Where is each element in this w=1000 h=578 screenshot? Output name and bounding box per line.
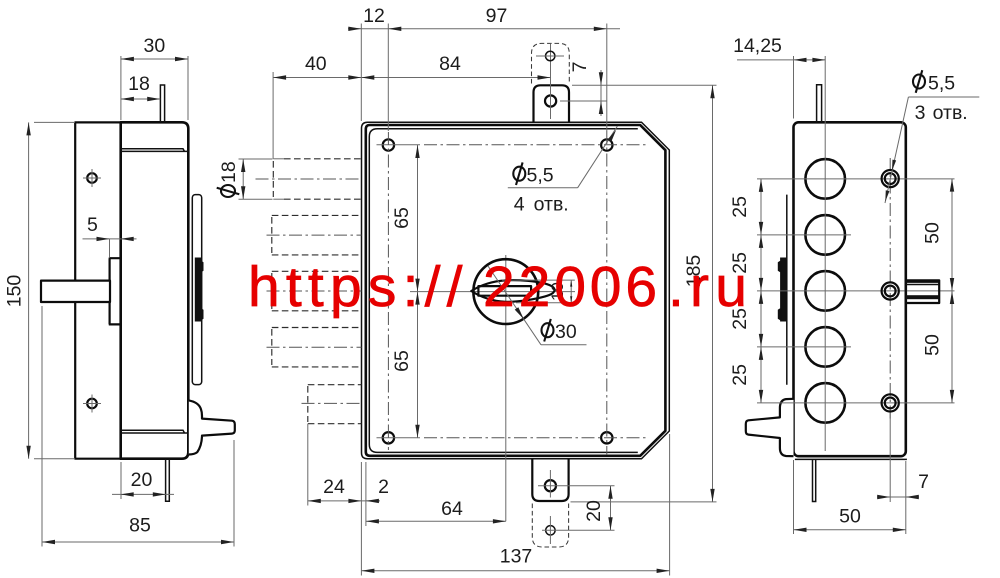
svg-text:25: 25 <box>729 364 751 386</box>
svg-text:20: 20 <box>583 500 605 522</box>
svg-text:65: 65 <box>391 207 413 229</box>
svg-text:65: 65 <box>391 350 413 372</box>
svg-text:30: 30 <box>555 321 577 343</box>
svg-text:3: 3 <box>915 102 926 124</box>
svg-text:18: 18 <box>128 73 150 95</box>
svg-text:2: 2 <box>378 476 389 498</box>
svg-text:50: 50 <box>922 334 944 356</box>
svg-text:7: 7 <box>569 62 591 73</box>
svg-text:50: 50 <box>922 222 944 244</box>
svg-text:84: 84 <box>439 53 461 75</box>
svg-text:137: 137 <box>500 546 533 568</box>
svg-text:97: 97 <box>486 5 508 27</box>
svg-text:5,5: 5,5 <box>928 73 955 95</box>
svg-text:150: 150 <box>4 275 26 308</box>
svg-text:14,25: 14,25 <box>733 35 782 57</box>
svg-text:5,5: 5,5 <box>527 165 554 187</box>
svg-text:.ru: .ru <box>668 255 753 319</box>
svg-text:5: 5 <box>87 214 98 236</box>
svg-text:40: 40 <box>305 53 327 75</box>
svg-text:24: 24 <box>323 476 345 498</box>
svg-text:https://: https:// <box>248 255 469 319</box>
svg-text:20: 20 <box>131 469 153 491</box>
svg-text:50: 50 <box>839 506 861 528</box>
svg-text:7: 7 <box>918 471 929 493</box>
svg-text:30: 30 <box>144 35 166 57</box>
svg-text:22006: 22006 <box>483 255 661 319</box>
svg-text:4: 4 <box>514 194 525 216</box>
svg-text:12: 12 <box>363 5 385 27</box>
svg-text:25: 25 <box>729 196 751 218</box>
svg-text:отв.: отв. <box>534 194 569 216</box>
svg-text:85: 85 <box>129 515 151 537</box>
svg-text:отв.: отв. <box>933 102 968 124</box>
svg-text:18: 18 <box>218 161 240 183</box>
svg-text:64: 64 <box>441 498 463 520</box>
